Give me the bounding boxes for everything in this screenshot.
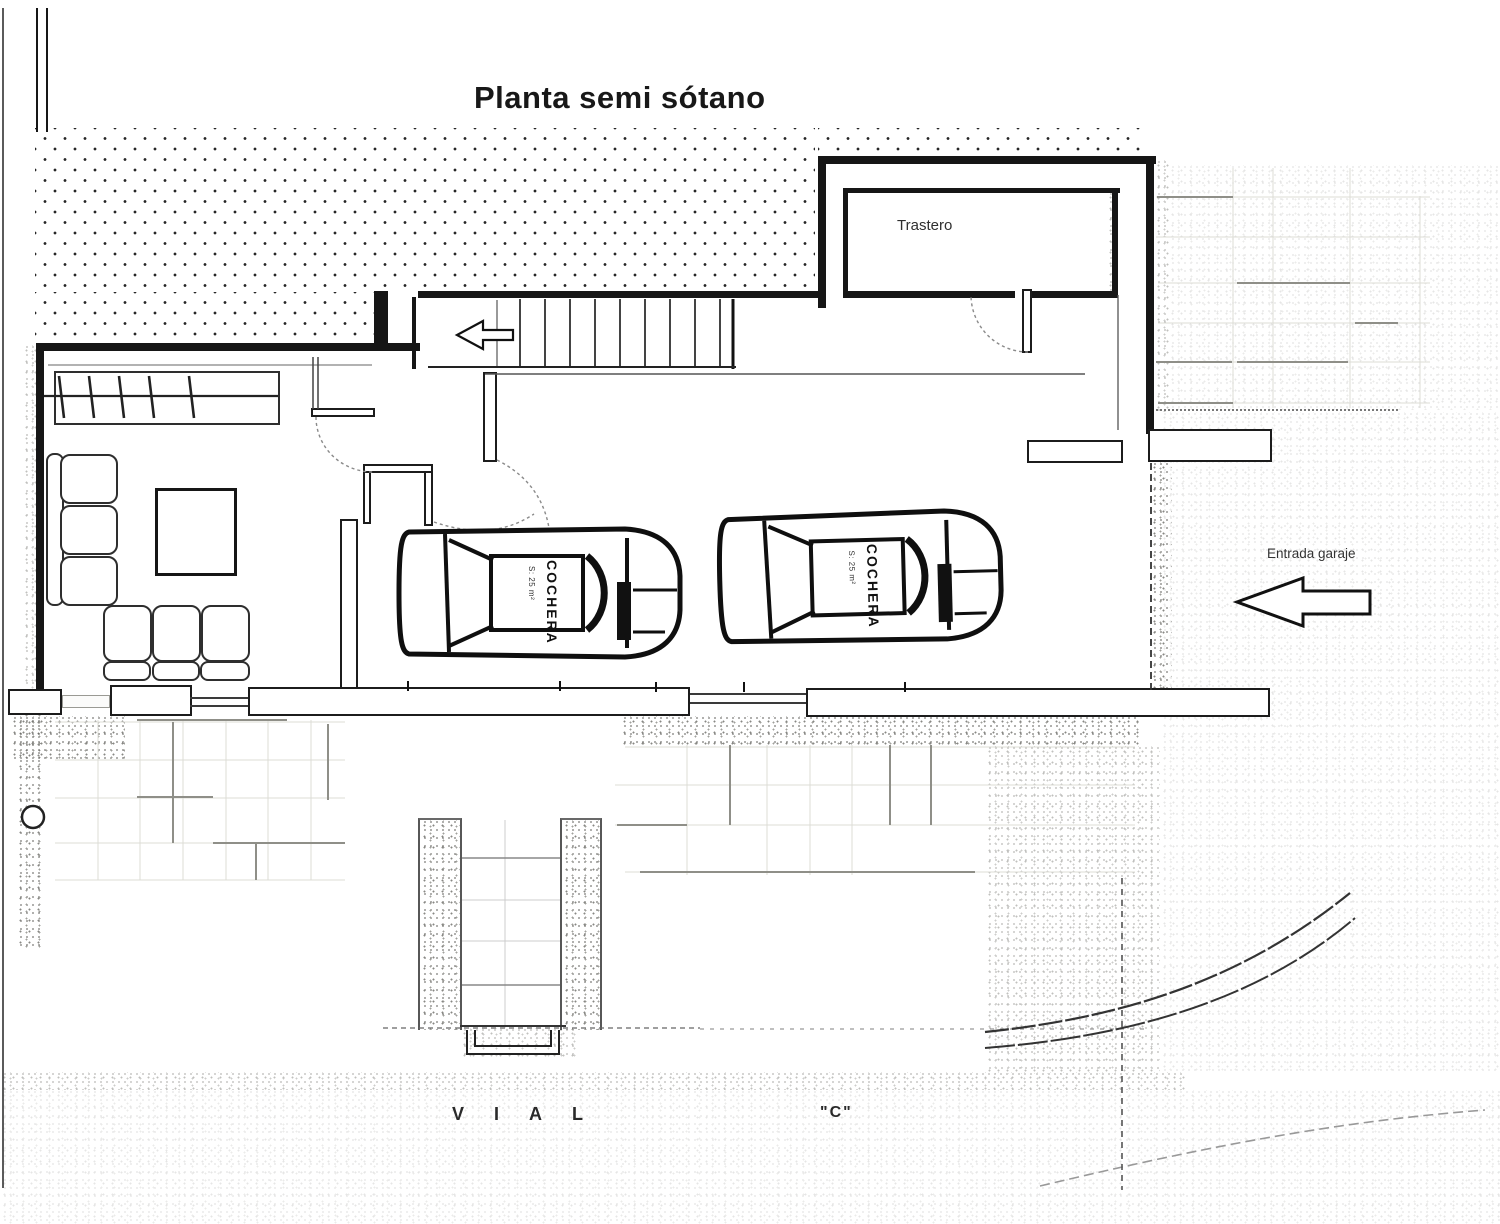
linework-layer: COCHERA S: 25 m² [0, 0, 1500, 1224]
storage-room-label: Trastero [897, 217, 952, 234]
car-1 [399, 529, 680, 657]
tile-grid-bottom-left [55, 720, 345, 880]
door-arcs [316, 295, 1028, 530]
tile-grid-top-right [1156, 168, 1430, 410]
garage-entrance-label: Entrada garaje [1267, 546, 1356, 561]
street-designation-label: "C" [820, 1104, 853, 1122]
garage-entrance-arrow-icon [1237, 578, 1370, 626]
outdoor-stair [383, 820, 1145, 1054]
street-name-label: VIAL [452, 1104, 613, 1125]
car-2 [718, 510, 1002, 645]
utility-ring [22, 806, 44, 828]
wardrobe-rail [44, 365, 372, 418]
floorplan-canvas: COCHERA S: 25 m² [0, 0, 1500, 1224]
road-curves [985, 463, 1485, 1190]
stairs-arrow-icon [457, 321, 513, 349]
page-title: Planta semi sótano [474, 80, 766, 116]
stairs [428, 299, 1085, 374]
tile-grid-mid [615, 745, 1135, 875]
